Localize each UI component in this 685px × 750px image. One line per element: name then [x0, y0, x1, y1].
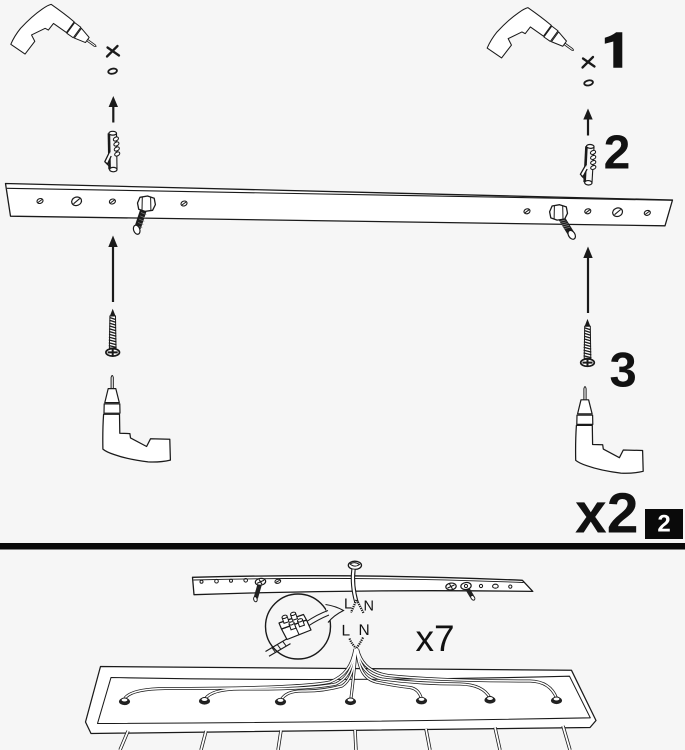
svg-text:x7: x7: [416, 618, 455, 659]
svg-text:N: N: [359, 622, 370, 639]
svg-text:x2: x2: [575, 482, 638, 546]
svg-text:L: L: [344, 597, 352, 613]
svg-text:2: 2: [604, 126, 631, 179]
svg-text:N: N: [364, 599, 374, 615]
svg-text:L: L: [342, 623, 351, 640]
svg-text:3: 3: [610, 344, 637, 398]
svg-text:2: 2: [657, 511, 670, 538]
